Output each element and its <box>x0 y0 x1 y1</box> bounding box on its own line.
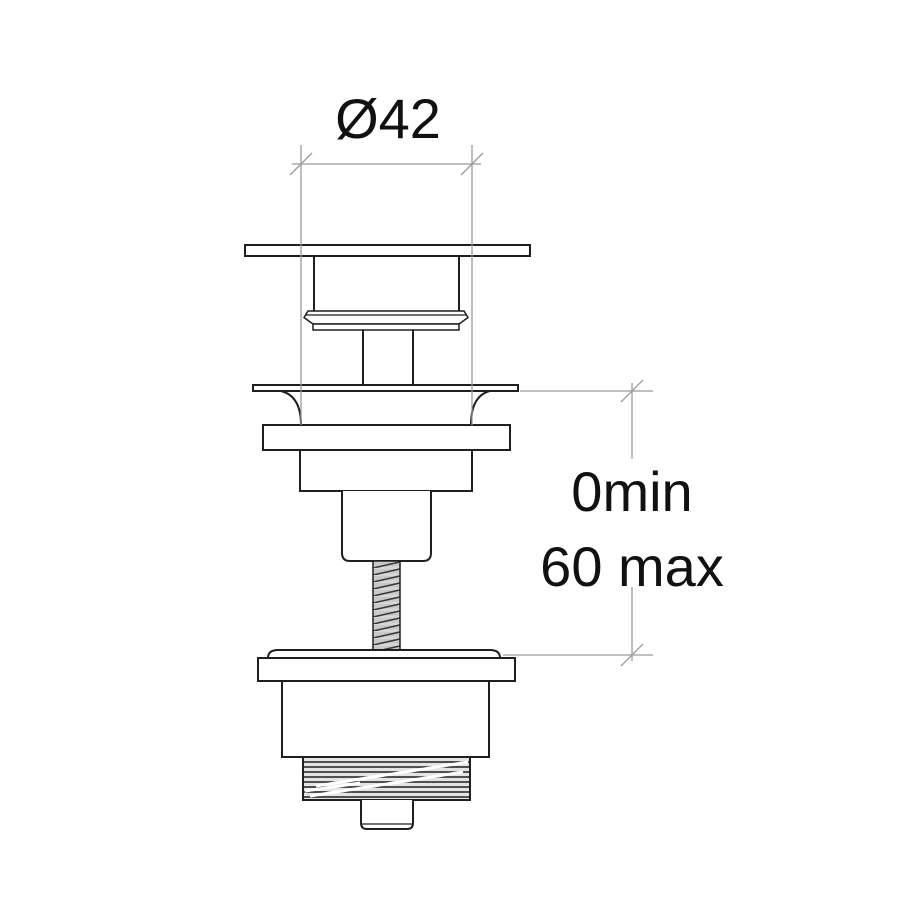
depth-min-label: 0min <box>571 460 692 523</box>
flange-curve-left <box>281 391 301 425</box>
fitting-geometry <box>245 245 530 829</box>
locknut <box>263 425 510 450</box>
cap-stem <box>363 330 413 385</box>
waste-fitting-drawing: Ø42 0min 60 max <box>0 0 900 900</box>
diameter-label: Ø42 <box>335 87 441 150</box>
flange-curve-right <box>471 391 490 425</box>
basin-flange <box>253 385 518 391</box>
cap-plate <box>245 245 530 256</box>
threaded-rod <box>373 561 400 651</box>
cap-body <box>314 256 459 312</box>
thread-collar <box>303 757 470 800</box>
technical-drawing-canvas: Ø42 0min 60 max <box>0 0 900 900</box>
bottom-body <box>282 681 489 757</box>
bottom-flange <box>258 658 515 681</box>
cap-bead-band <box>313 324 459 330</box>
body-upper <box>300 450 472 491</box>
cap-bead <box>304 311 468 324</box>
tailpiece <box>361 800 413 829</box>
body-lower <box>342 491 431 561</box>
depth-max-label: 60 max <box>540 535 724 598</box>
